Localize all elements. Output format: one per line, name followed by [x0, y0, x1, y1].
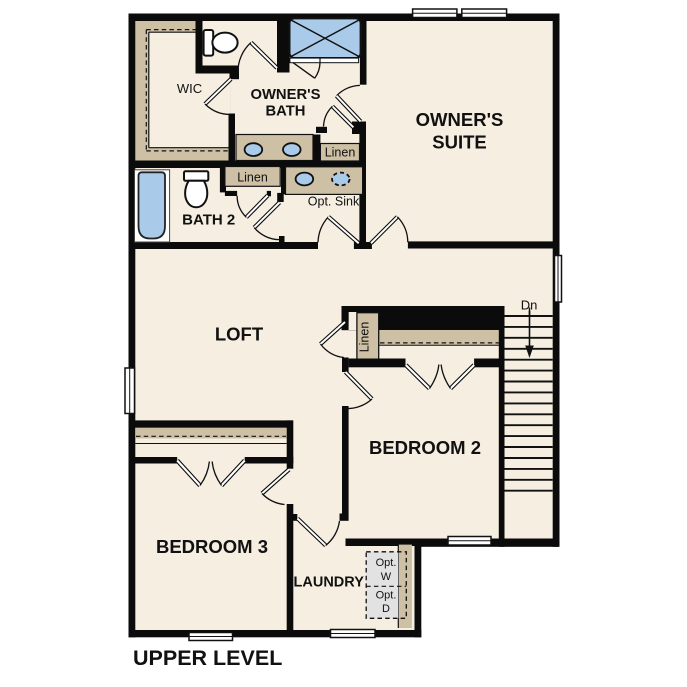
svg-text:W: W	[381, 571, 392, 583]
svg-text:BATH 2: BATH 2	[182, 212, 235, 229]
svg-text:LAUNDRY: LAUNDRY	[294, 575, 365, 591]
svg-text:Dn: Dn	[521, 298, 538, 313]
svg-text:OWNER'S: OWNER'S	[250, 87, 320, 103]
svg-text:Opt. Sink: Opt. Sink	[308, 195, 360, 209]
svg-text:Linen: Linen	[237, 171, 268, 185]
svg-text:BEDROOM 3: BEDROOM 3	[156, 536, 268, 557]
svg-text:BEDROOM 2: BEDROOM 2	[369, 437, 481, 458]
svg-text:LOFT: LOFT	[215, 324, 264, 345]
svg-text:Opt.: Opt.	[376, 557, 397, 569]
svg-text:OWNER'S: OWNER'S	[416, 109, 504, 130]
svg-text:D: D	[382, 603, 390, 615]
svg-text:UPPER LEVEL: UPPER LEVEL	[133, 646, 282, 670]
svg-text:SUITE: SUITE	[432, 132, 486, 153]
svg-text:Linen: Linen	[358, 322, 372, 353]
svg-text:WIC: WIC	[177, 81, 202, 96]
svg-text:Opt.: Opt.	[376, 590, 397, 602]
svg-text:BATH: BATH	[266, 104, 306, 120]
svg-text:Linen: Linen	[325, 146, 356, 160]
